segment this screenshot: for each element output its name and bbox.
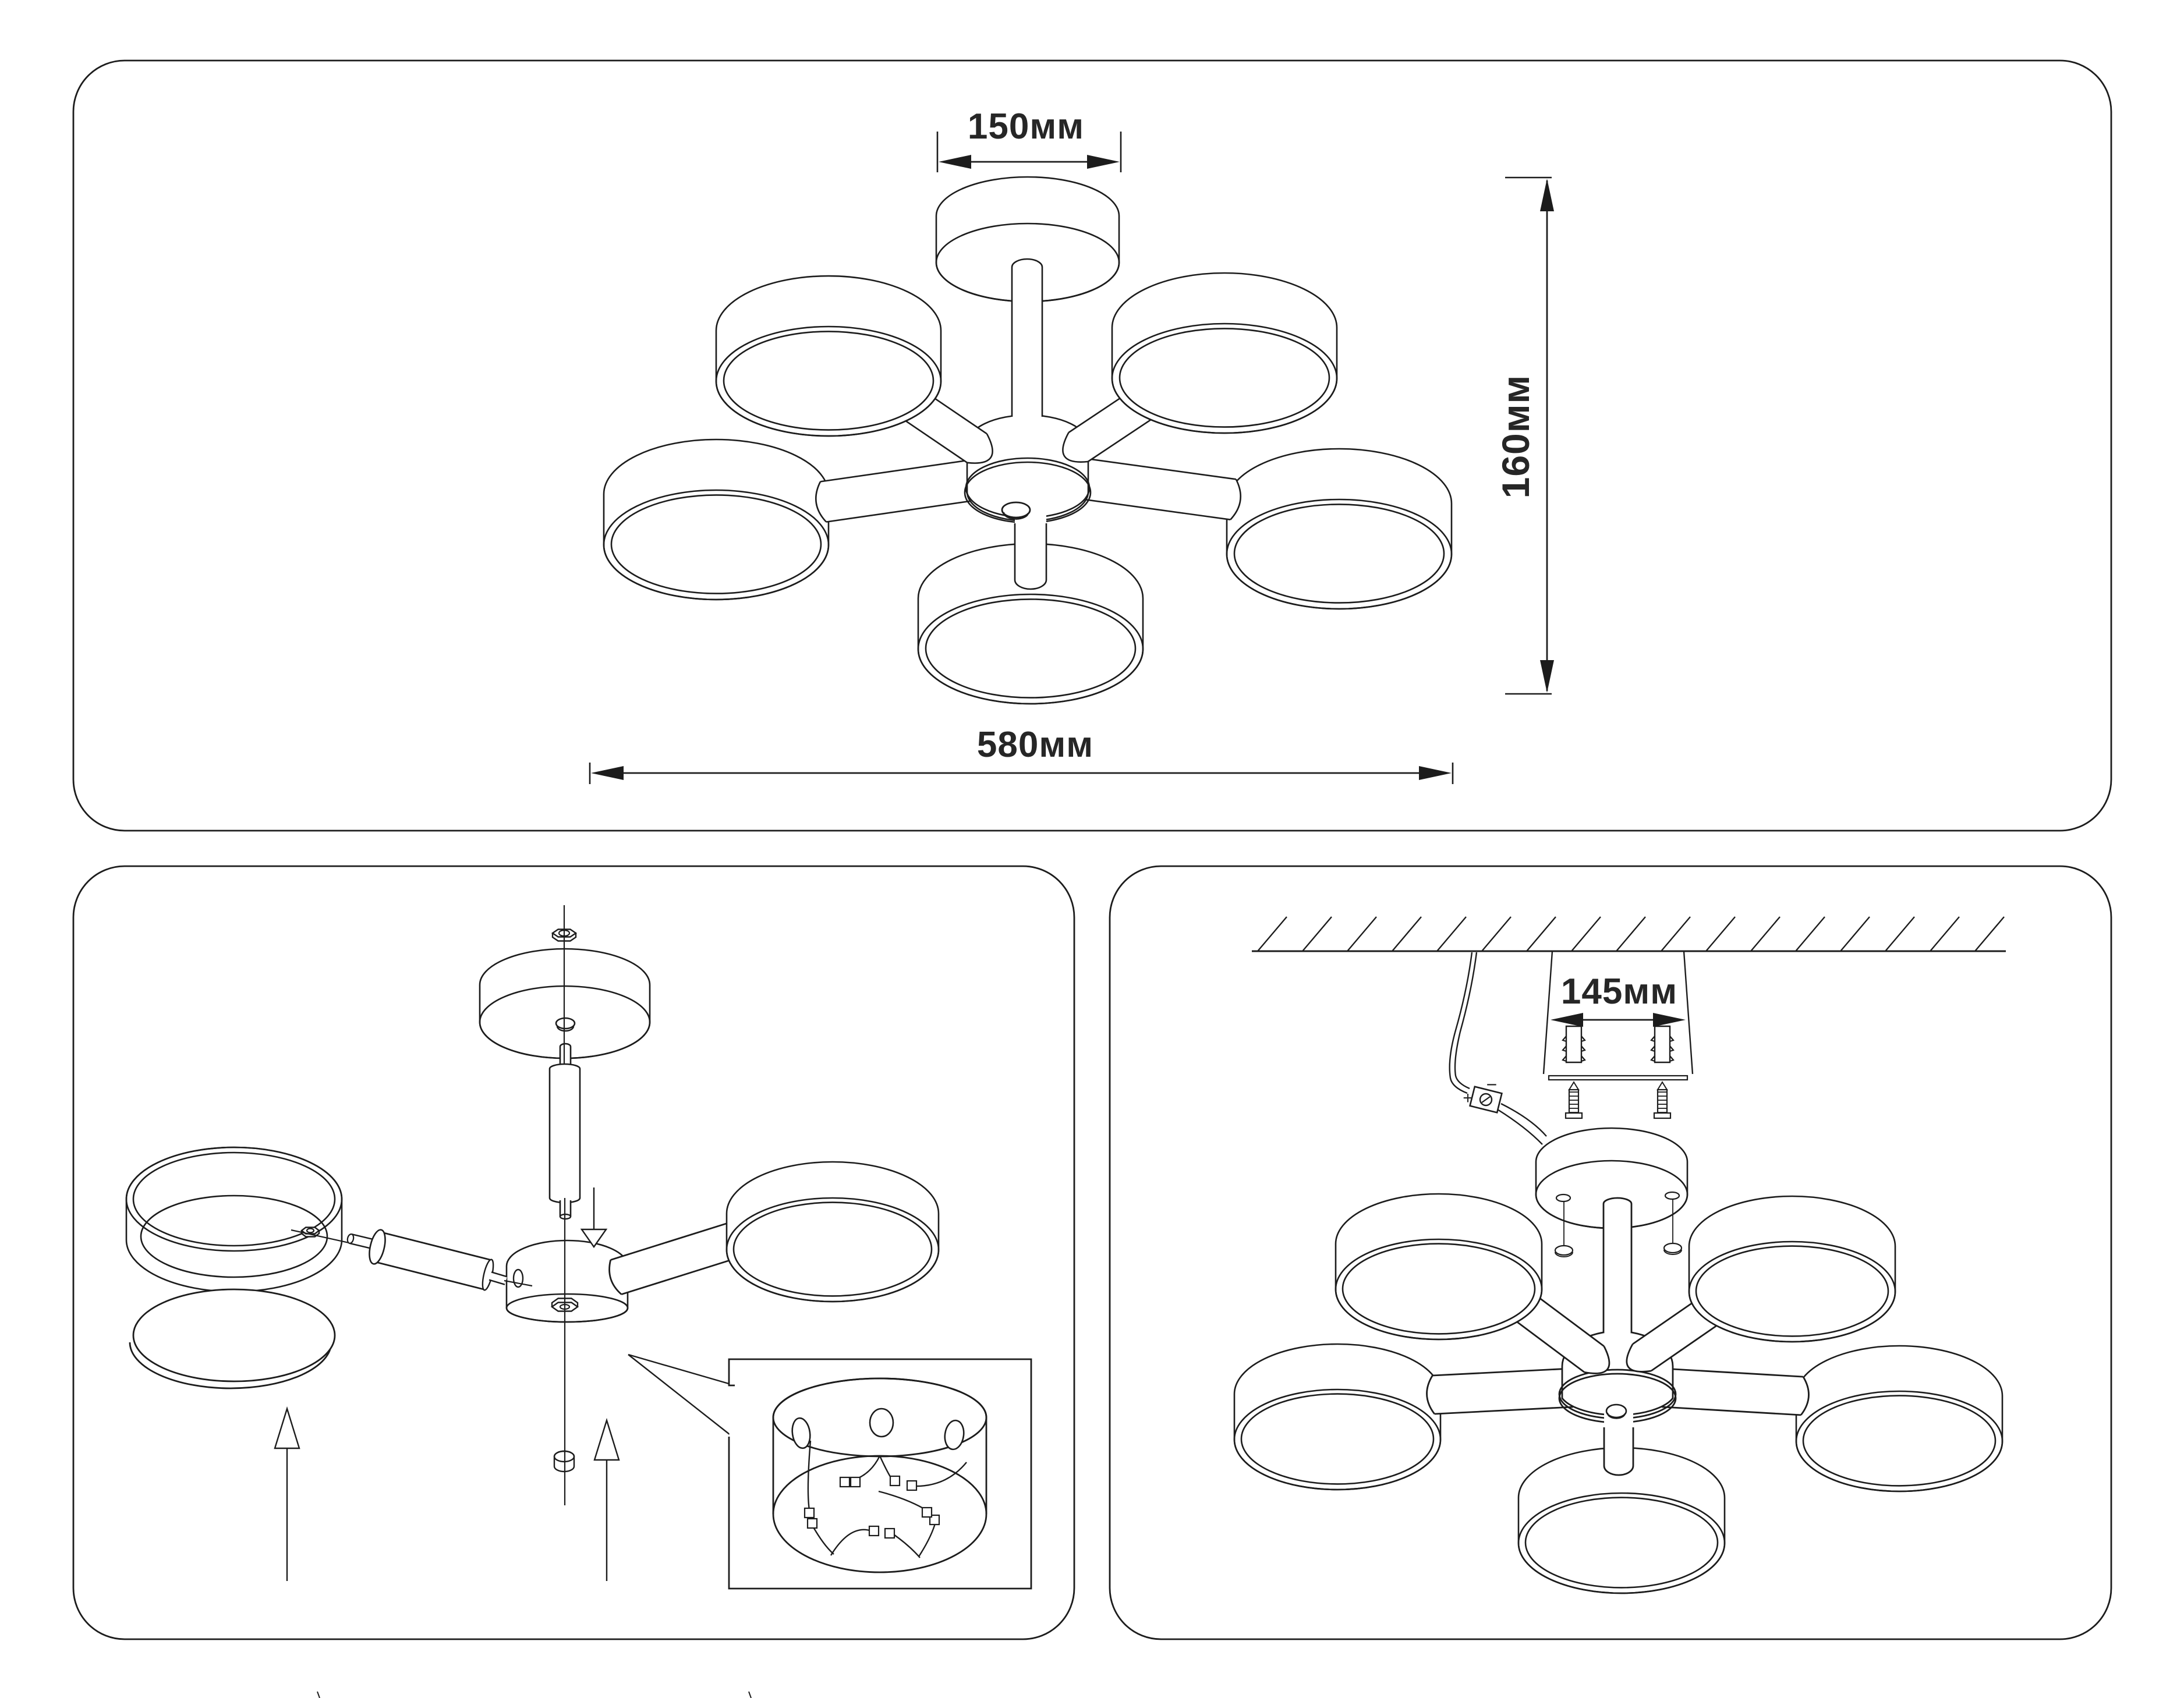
svg-text:580мм: 580мм [977,725,1093,765]
svg-text:−: − [1486,1074,1498,1095]
svg-text:145мм: 145мм [1561,972,1677,1012]
svg-text:160мм: 160мм [1494,375,1537,499]
svg-text:150мм: 150мм [968,107,1084,147]
svg-text:+: + [1463,1089,1473,1108]
